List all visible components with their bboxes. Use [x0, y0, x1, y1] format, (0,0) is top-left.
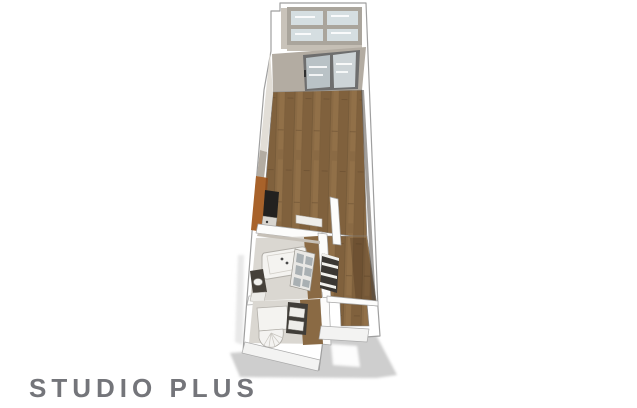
sliding-door-pane-left: [306, 55, 330, 89]
entry-bottom-wall: [319, 326, 369, 342]
entry-floor: [340, 303, 369, 326]
studio-plus-floorplan: [0, 0, 637, 408]
corner-shelf-unit: [320, 253, 339, 293]
bathroom: [250, 233, 322, 302]
floorplan-title: STUDIO PLUS: [29, 373, 259, 404]
storage-shelf-unit: [286, 302, 308, 335]
sliding-glass-door-wall: [272, 47, 366, 92]
entry-door-light: [331, 344, 360, 367]
laundry-unit: [257, 306, 289, 331]
sliding-door-pane-right: [333, 52, 356, 88]
living-area-floor: [262, 90, 367, 238]
vanity-sink: [254, 279, 263, 286]
cooktop: [263, 190, 279, 218]
door-handle-icon: [304, 70, 306, 77]
toilet-room: [249, 299, 323, 347]
floorplan-canvas: STUDIO PLUS: [0, 0, 637, 408]
balcony: [281, 7, 362, 51]
